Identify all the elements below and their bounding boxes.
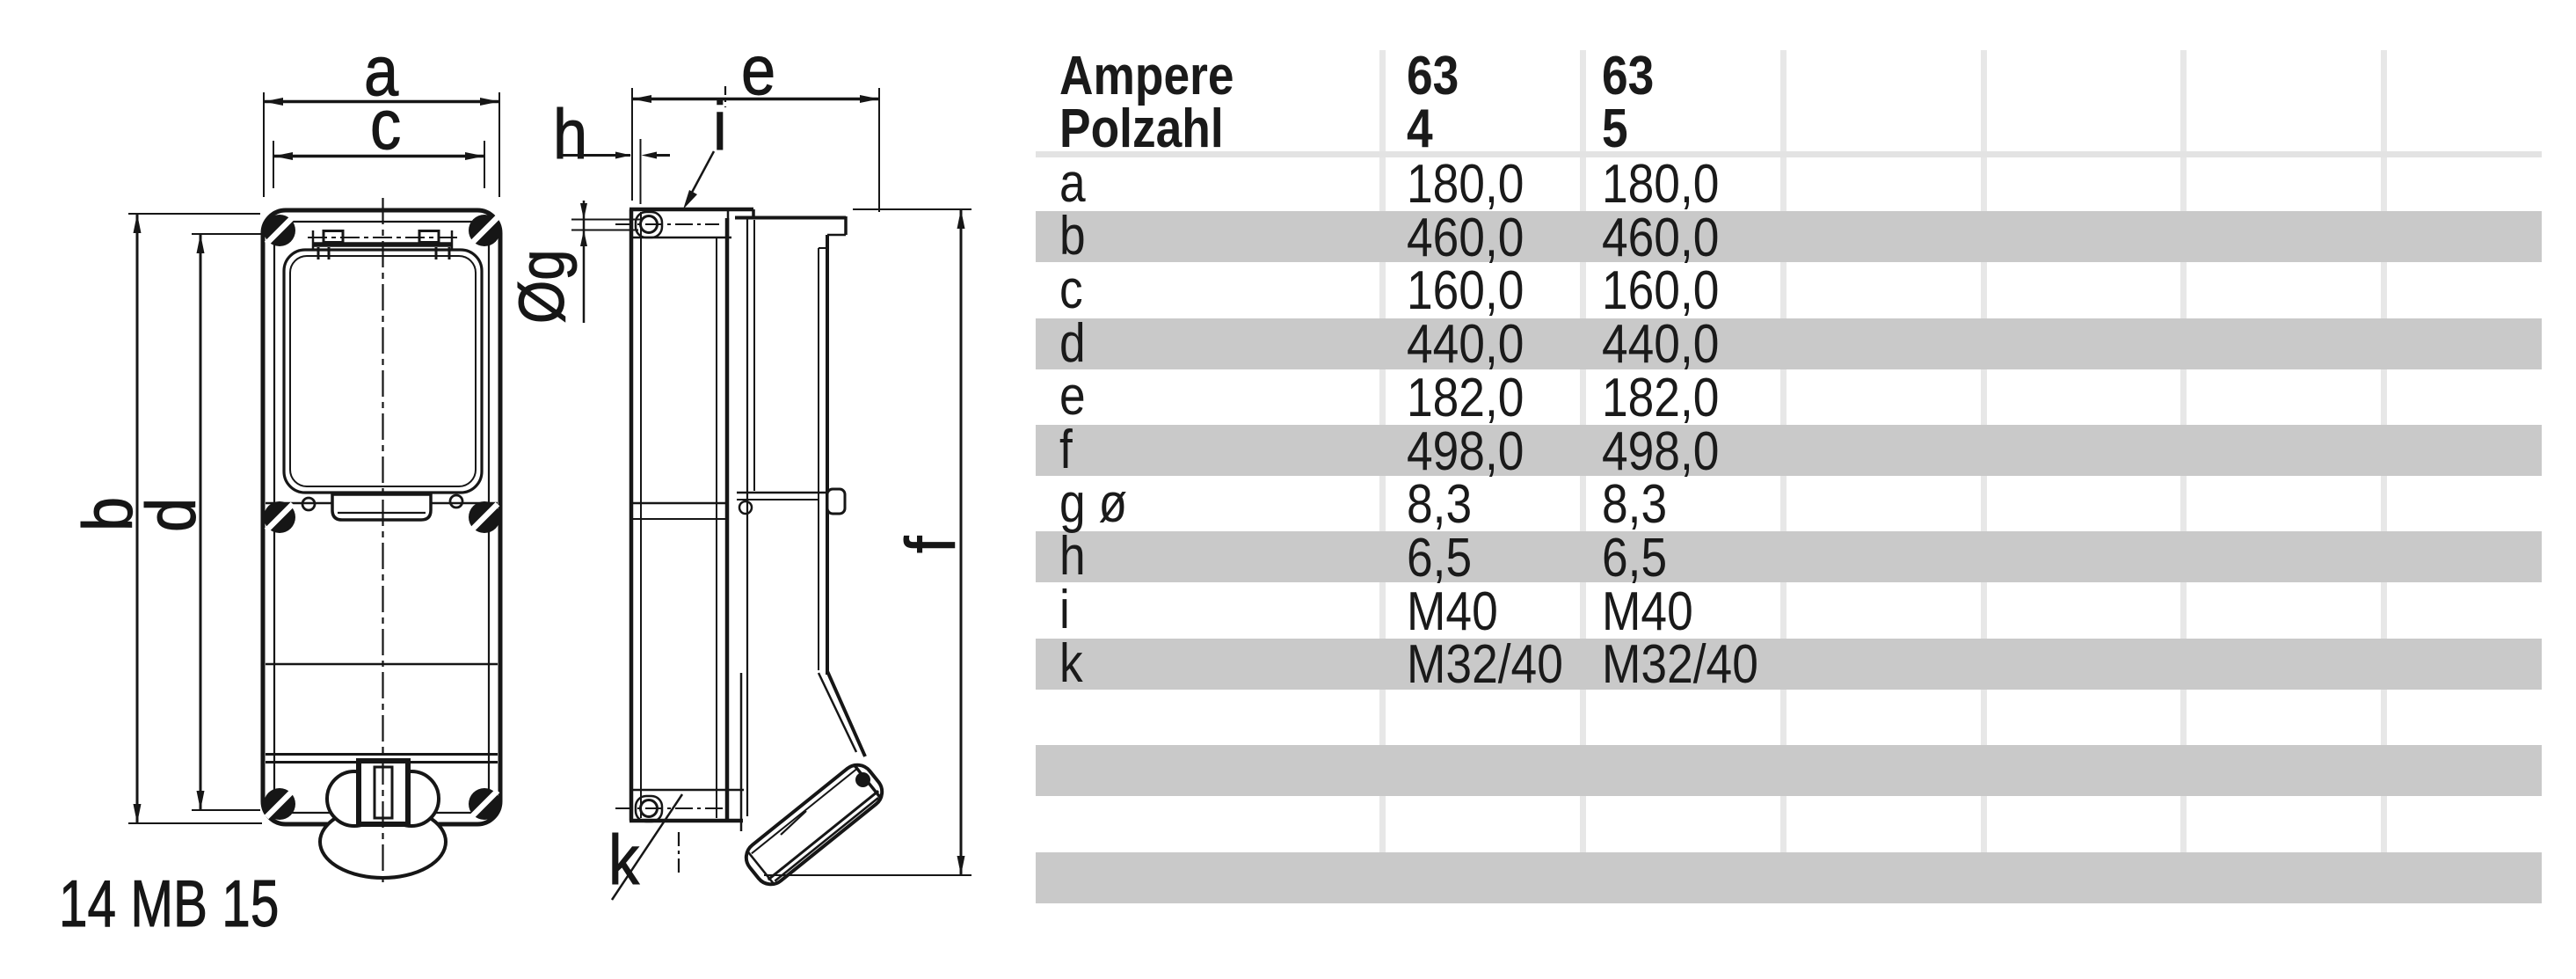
- svg-text:d: d: [132, 498, 210, 532]
- svg-text:k: k: [608, 821, 640, 899]
- svg-text:c: c: [370, 85, 401, 164]
- svg-text:e: e: [741, 31, 775, 109]
- svg-text:Øg: Øg: [507, 249, 578, 324]
- svg-text:f: f: [891, 535, 970, 553]
- svg-text:h: h: [553, 95, 587, 173]
- svg-text:14 MB 15: 14 MB 15: [59, 867, 279, 941]
- svg-text:i: i: [713, 86, 727, 164]
